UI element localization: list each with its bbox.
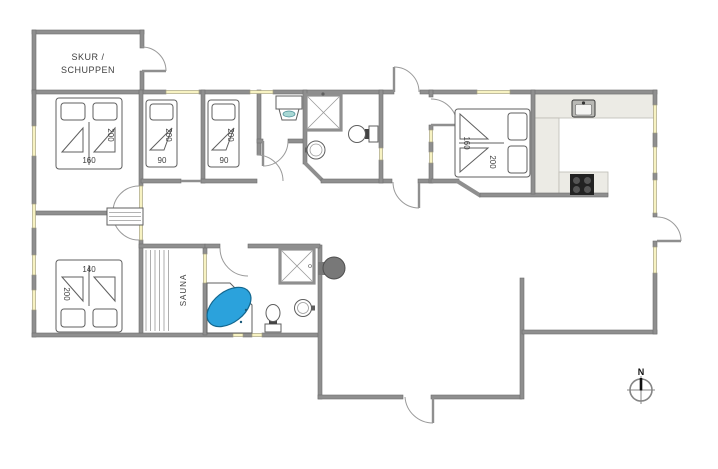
bed-single-left-length-label: 200: [164, 128, 173, 142]
hall-living-door: [393, 182, 419, 208]
bed-master-length-label: 200: [106, 128, 115, 142]
bed-single-left-width-label: 90: [158, 156, 167, 165]
shower-top: [306, 92, 341, 130]
sink-top: [305, 141, 325, 159]
compass-north-label: N: [638, 367, 645, 377]
entry-door: [394, 67, 419, 92]
bed-right-width-label: 160: [462, 136, 471, 150]
shower-lower: [280, 249, 314, 283]
whirlpool-tub: [200, 279, 258, 334]
terrace-door: [657, 217, 681, 241]
wardrobe: [107, 208, 143, 225]
floor-plan: N SKUR / SCHUPPEN 160 200 90 200 90 200 …: [0, 0, 718, 469]
shed-door: [142, 47, 166, 71]
bed-bottom-left-length-label: 200: [62, 287, 71, 301]
bedroom-single-right-door: [257, 155, 283, 181]
shed-label-line2: SCHUPPEN: [61, 65, 115, 75]
sauna-benches: [146, 250, 169, 331]
bed-single-right-width-label: 90: [220, 156, 229, 165]
bed-bottom-left-width-label: 140: [82, 265, 96, 274]
shed-label-line1: SKUR /: [71, 52, 104, 62]
bed-single-right-length-label: 200: [226, 128, 235, 142]
south-exit-door: [405, 397, 433, 423]
toilet-top: [349, 126, 379, 143]
floor-plan-svg: N SKUR / SCHUPPEN 160 200 90 200 90 200 …: [0, 0, 718, 469]
bed-right-length-label: 200: [488, 155, 497, 169]
bathroom-lower-door: [220, 248, 248, 276]
bed-master-width-label: 160: [82, 156, 96, 165]
compass-rose: N: [627, 367, 655, 404]
toilet-lower: [265, 305, 281, 333]
stove-hob: [570, 174, 594, 195]
sauna-label: SAUNA: [179, 274, 188, 307]
kitchen-sink: [572, 100, 595, 117]
bedroom-right-door: [431, 99, 457, 125]
washbasin-vanity: [276, 96, 302, 120]
sink-lower: [295, 300, 316, 317]
